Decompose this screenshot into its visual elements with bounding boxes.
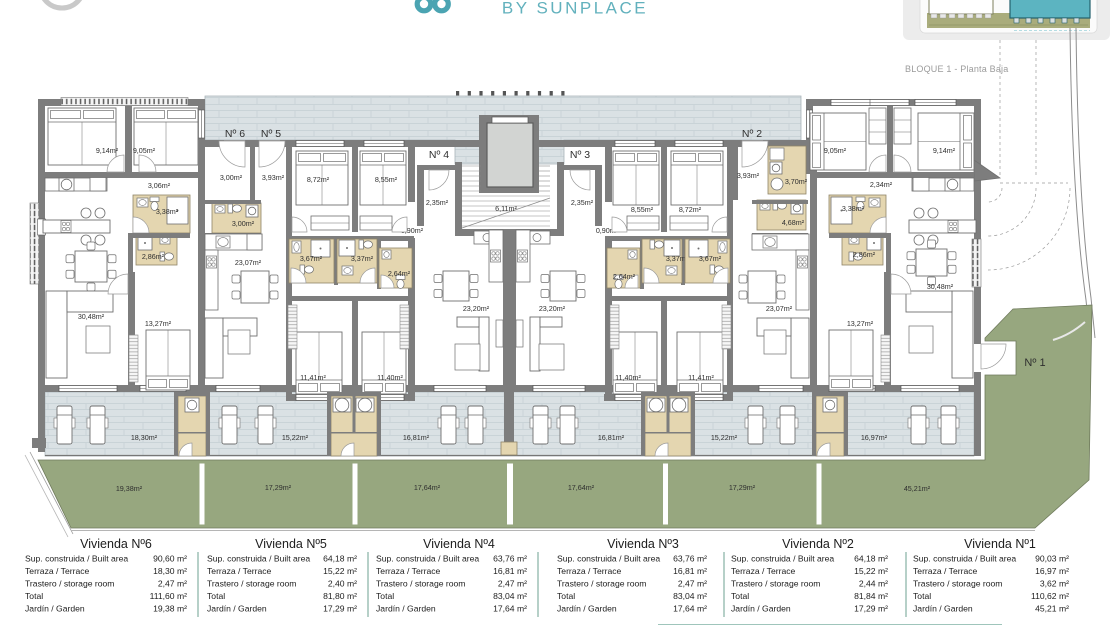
svg-text:Nº 4: Nº 4: [429, 149, 449, 161]
svg-text:83,04 m²: 83,04 m²: [673, 591, 707, 601]
svg-text:3,70m²: 3,70m²: [785, 177, 808, 186]
svg-text:17,64m²: 17,64m²: [414, 483, 441, 492]
svg-text:3,37m²: 3,37m²: [351, 254, 374, 263]
svg-text:2,86m²: 2,86m²: [853, 250, 876, 259]
svg-text:9,05m²: 9,05m²: [824, 146, 847, 155]
svg-text:15,22 m²: 15,22 m²: [854, 566, 888, 576]
svg-text:8,72m²: 8,72m²: [307, 175, 330, 184]
svg-text:8,72m²: 8,72m²: [679, 205, 702, 214]
svg-text:Trastero / storage room: Trastero / storage room: [25, 579, 114, 589]
svg-text:Terraza / Terrace: Terraza / Terrace: [207, 566, 272, 576]
svg-text:2,86m²: 2,86m²: [142, 252, 165, 261]
svg-text:18,30m²: 18,30m²: [131, 433, 158, 442]
svg-text:2,35m²: 2,35m²: [571, 198, 594, 207]
svg-text:BLOQUE 1 - Planta Baja: BLOQUE 1 - Planta Baja: [905, 64, 1008, 74]
svg-text:17,64 m²: 17,64 m²: [673, 604, 707, 614]
svg-text:Total: Total: [557, 591, 575, 601]
svg-text:3,38m²: 3,38m²: [842, 204, 865, 213]
svg-text:83,04 m²: 83,04 m²: [493, 591, 527, 601]
svg-text:23,07m²: 23,07m²: [235, 258, 262, 267]
svg-text:Nº 2: Nº 2: [742, 128, 762, 140]
svg-text:2,34m²: 2,34m²: [870, 180, 893, 189]
svg-text:Sup. construida / Built area: Sup. construida / Built area: [557, 554, 660, 564]
svg-text:16,81m²: 16,81m²: [598, 433, 625, 442]
svg-text:17,29 m²: 17,29 m²: [323, 604, 357, 614]
svg-text:Jardín / Garden: Jardín / Garden: [557, 604, 617, 614]
svg-text:3,62 m²: 3,62 m²: [1040, 579, 1069, 589]
svg-text:Sup. construida / Built area: Sup. construida / Built area: [913, 554, 1016, 564]
svg-text:2,44 m²: 2,44 m²: [859, 579, 888, 589]
svg-text:Jardín / Garden: Jardín / Garden: [731, 604, 791, 614]
svg-text:11,41m²: 11,41m²: [688, 373, 714, 382]
svg-text:16,81 m²: 16,81 m²: [493, 566, 527, 576]
svg-text:11,40m²: 11,40m²: [377, 373, 403, 382]
svg-text:6,11m²: 6,11m²: [495, 204, 517, 213]
svg-text:81,84 m²: 81,84 m²: [854, 591, 888, 601]
svg-text:Vivienda Nº6: Vivienda Nº6: [80, 537, 152, 551]
svg-text:Trastero / storage room: Trastero / storage room: [207, 579, 296, 589]
svg-text:90,60 m²: 90,60 m²: [153, 554, 187, 564]
svg-text:3,67m²: 3,67m²: [699, 254, 722, 263]
svg-text:3,00m²: 3,00m²: [220, 173, 243, 182]
svg-text:15,22 m²: 15,22 m²: [323, 566, 357, 576]
svg-text:Total: Total: [207, 591, 225, 601]
svg-text:Terraza / Terrace: Terraza / Terrace: [913, 566, 978, 576]
svg-text:Terraza / Terrace: Terraza / Terrace: [731, 566, 796, 576]
svg-text:64,18 m²: 64,18 m²: [854, 554, 888, 564]
svg-text:Vivienda Nº5: Vivienda Nº5: [255, 537, 327, 551]
svg-text:90,03 m²: 90,03 m²: [1035, 554, 1069, 564]
svg-text:Vivienda Nº1: Vivienda Nº1: [964, 537, 1036, 551]
svg-text:15,22m²: 15,22m²: [282, 433, 309, 442]
svg-text:16,81m²: 16,81m²: [403, 433, 430, 442]
svg-text:Jardín / Garden: Jardín / Garden: [913, 604, 973, 614]
svg-text:Nº 6: Nº 6: [225, 128, 245, 140]
svg-text:23,07m²: 23,07m²: [766, 304, 793, 313]
svg-text:17,29 m²: 17,29 m²: [854, 604, 888, 614]
svg-text:9,05m²: 9,05m²: [133, 146, 156, 155]
svg-text:8,55m²: 8,55m²: [631, 205, 654, 214]
svg-text:111,60 m²: 111,60 m²: [150, 591, 188, 601]
svg-text:23,20m²: 23,20m²: [539, 304, 566, 313]
svg-text:18,30 m²: 18,30 m²: [153, 566, 187, 576]
svg-text:2,64m²: 2,64m²: [388, 269, 411, 278]
svg-text:11,40m²: 11,40m²: [615, 373, 641, 382]
svg-text:19,38 m²: 19,38 m²: [153, 604, 187, 614]
svg-text:Total: Total: [25, 591, 43, 601]
svg-text:Vivienda Nº3: Vivienda Nº3: [607, 537, 679, 551]
svg-text:Terraza / Terrace: Terraza / Terrace: [557, 566, 622, 576]
svg-text:Nº 3: Nº 3: [570, 149, 590, 161]
svg-text:110,62 m²: 110,62 m²: [1031, 591, 1069, 601]
svg-text:81,80 m²: 81,80 m²: [323, 591, 357, 601]
svg-text:17,29m²: 17,29m²: [729, 483, 756, 492]
svg-text:3,67m²: 3,67m²: [300, 254, 323, 263]
svg-text:11,41m²: 11,41m²: [300, 373, 326, 382]
svg-text:45,21 m²: 45,21 m²: [1035, 604, 1069, 614]
svg-text:Nº 1: Nº 1: [1024, 357, 1045, 369]
svg-text:30,48m²: 30,48m²: [78, 312, 105, 321]
svg-text:23,20m²: 23,20m²: [463, 304, 490, 313]
svg-text:Jardín / Garden: Jardín / Garden: [376, 604, 436, 614]
svg-text:Sup. construida / Built area: Sup. construida / Built area: [376, 554, 479, 564]
svg-text:16,97 m²: 16,97 m²: [1035, 566, 1069, 576]
svg-text:30,48m²: 30,48m²: [927, 282, 954, 291]
svg-text:Terraza / Terrace: Terraza / Terrace: [25, 566, 90, 576]
svg-text:Total: Total: [376, 591, 394, 601]
svg-text:63,76 m²: 63,76 m²: [673, 554, 707, 564]
svg-text:Jardín / Garden: Jardín / Garden: [25, 604, 85, 614]
svg-text:4,68m²: 4,68m²: [782, 218, 805, 227]
svg-text:Sup. construida / Built area: Sup. construida / Built area: [731, 554, 834, 564]
svg-text:Nº 5: Nº 5: [261, 128, 281, 140]
svg-text:9,14m²: 9,14m²: [96, 146, 119, 155]
svg-text:2,47 m²: 2,47 m²: [498, 579, 527, 589]
svg-text:13,27m²: 13,27m²: [145, 319, 172, 328]
svg-text:17,29m²: 17,29m²: [265, 483, 292, 492]
svg-text:17,64m²: 17,64m²: [568, 483, 595, 492]
svg-text:13,27m²: 13,27m²: [847, 319, 874, 328]
svg-text:BY SUNPLACE: BY SUNPLACE: [502, 0, 648, 18]
svg-text:2,40 m²: 2,40 m²: [328, 579, 357, 589]
svg-text:2,47 m²: 2,47 m²: [158, 579, 187, 589]
svg-text:Total: Total: [913, 591, 931, 601]
svg-text:3,38m²: 3,38m²: [156, 207, 179, 216]
svg-text:Trastero / storage room: Trastero / storage room: [376, 579, 465, 589]
svg-text:Total: Total: [731, 591, 749, 601]
svg-text:2,47 m²: 2,47 m²: [678, 579, 707, 589]
svg-text:2,35m²: 2,35m²: [426, 198, 449, 207]
svg-text:3,00m²: 3,00m²: [232, 219, 255, 228]
svg-text:3,93m²: 3,93m²: [262, 173, 285, 182]
svg-text:45,21m²: 45,21m²: [904, 484, 931, 493]
svg-text:15,22m²: 15,22m²: [711, 433, 738, 442]
svg-text:Terraza / Terrace: Terraza / Terrace: [376, 566, 441, 576]
svg-text:Sup. construida / Built area: Sup. construida / Built area: [207, 554, 310, 564]
svg-text:17,64 m²: 17,64 m²: [493, 604, 527, 614]
svg-text:16,81 m²: 16,81 m²: [673, 566, 707, 576]
svg-text:Vivienda Nº4: Vivienda Nº4: [423, 537, 495, 551]
svg-text:64,18 m²: 64,18 m²: [323, 554, 357, 564]
svg-text:Vivienda Nº2: Vivienda Nº2: [782, 537, 854, 551]
svg-text:3,06m²: 3,06m²: [148, 181, 171, 190]
svg-text:3,93m²: 3,93m²: [737, 171, 760, 180]
svg-text:19,38m²: 19,38m²: [116, 484, 143, 493]
svg-text:8,55m²: 8,55m²: [375, 175, 398, 184]
svg-text:2,64m²: 2,64m²: [613, 272, 636, 281]
svg-text:Trastero / storage room: Trastero / storage room: [913, 579, 1002, 589]
svg-text:Trastero / storage room: Trastero / storage room: [557, 579, 646, 589]
svg-text:9,14m²: 9,14m²: [933, 146, 956, 155]
svg-text:Sup. construida / Built area: Sup. construida / Built area: [25, 554, 128, 564]
svg-text:Jardín / Garden: Jardín / Garden: [207, 604, 267, 614]
svg-text:63,76 m²: 63,76 m²: [493, 554, 527, 564]
svg-text:16,97m²: 16,97m²: [861, 433, 888, 442]
svg-text:Trastero / storage room: Trastero / storage room: [731, 579, 820, 589]
